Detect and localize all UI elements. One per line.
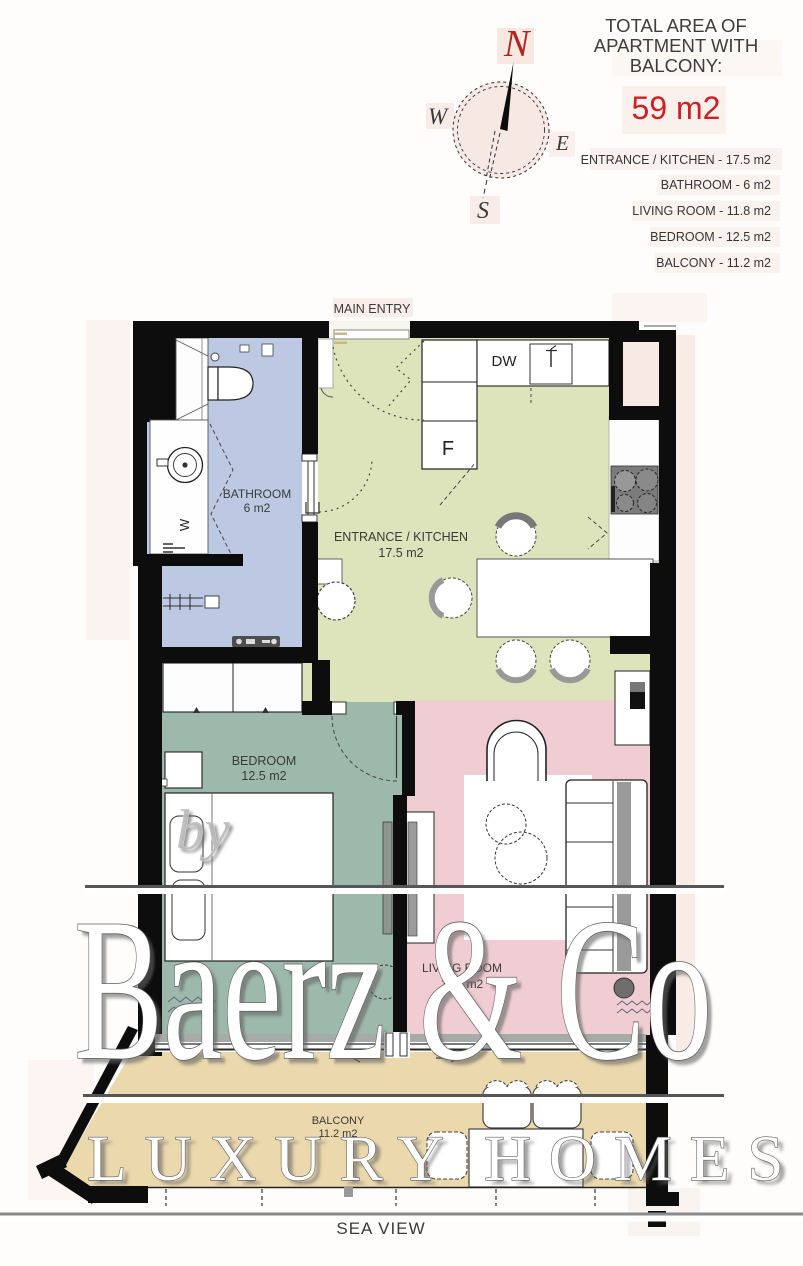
- svg-text:N: N: [503, 23, 532, 65]
- svg-text:BEDROOM - 12.5 m2: BEDROOM - 12.5 m2: [650, 230, 771, 244]
- svg-text:LUXURY HOMES: LUXURY HOMES: [87, 1123, 802, 1195]
- svg-text:W: W: [428, 104, 449, 129]
- svg-text:S: S: [477, 198, 489, 224]
- svg-text:BATHROOM: BATHROOM: [223, 487, 291, 501]
- svg-text:E: E: [555, 131, 569, 155]
- svg-text:DW: DW: [492, 353, 518, 370]
- svg-text:12.5 m2: 12.5 m2: [241, 769, 286, 783]
- svg-text:BALCONY:: BALCONY:: [630, 55, 723, 76]
- svg-text:W: W: [177, 518, 192, 531]
- svg-text:BEDROOM: BEDROOM: [232, 754, 297, 768]
- svg-text:F: F: [442, 438, 454, 460]
- svg-text:17.5 m2: 17.5 m2: [378, 546, 423, 560]
- svg-text:TOTAL AREA OF: TOTAL AREA OF: [605, 15, 747, 36]
- svg-text:ENTRANCE / KITCHEN - 17.5 m2: ENTRANCE / KITCHEN - 17.5 m2: [581, 153, 771, 167]
- svg-text:BALCONY - 11.2 m2: BALCONY - 11.2 m2: [656, 256, 771, 270]
- svg-text:6 m2: 6 m2: [244, 501, 271, 515]
- svg-text:ENTRANCE / KITCHEN: ENTRANCE / KITCHEN: [334, 530, 468, 544]
- svg-text:SEA VIEW: SEA VIEW: [336, 1219, 425, 1238]
- svg-text:LIVING ROOM - 11.8 m2: LIVING ROOM - 11.8 m2: [632, 204, 771, 218]
- svg-text:Baerz & Co: Baerz & Co: [74, 877, 712, 1103]
- svg-text:MAIN ENTRY: MAIN ENTRY: [334, 302, 412, 316]
- svg-text:BATHROOM - 6 m2: BATHROOM - 6 m2: [661, 178, 771, 192]
- svg-text:59 m2: 59 m2: [632, 90, 721, 126]
- svg-text:APARTMENT WITH: APARTMENT WITH: [594, 35, 758, 56]
- svg-text:by: by: [176, 799, 231, 862]
